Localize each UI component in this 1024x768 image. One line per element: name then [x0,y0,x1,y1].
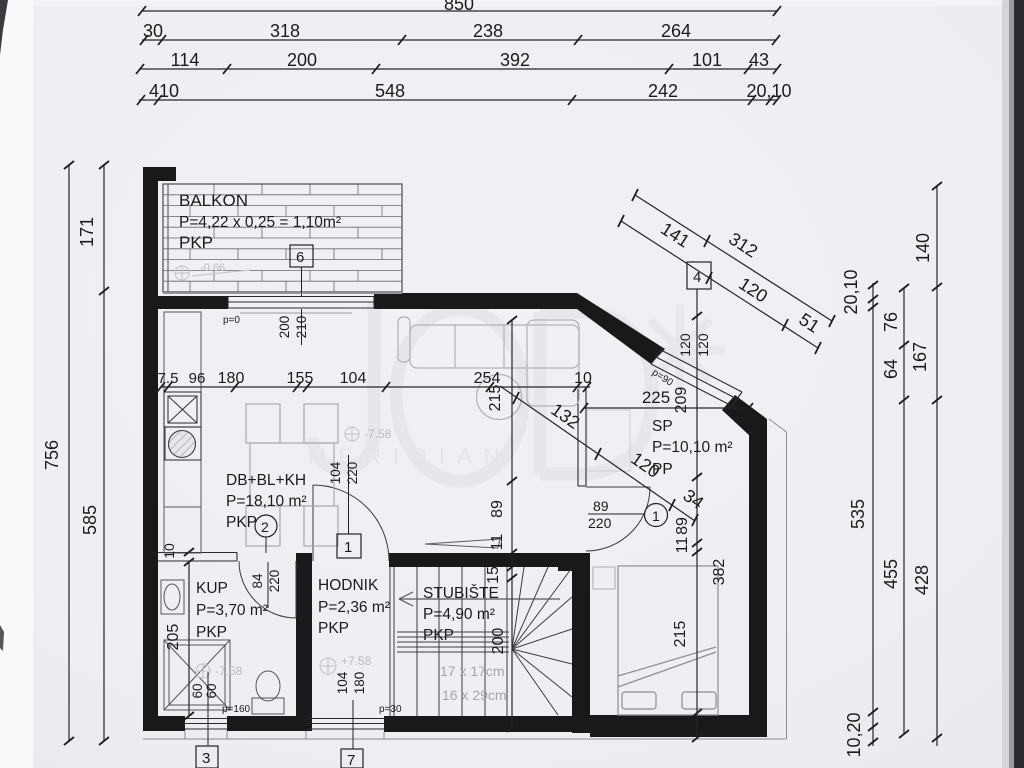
svg-text:3: 3 [202,750,210,767]
svg-text:7.5: 7.5 [158,370,179,387]
svg-text:p=0: p=0 [223,315,240,326]
svg-text:10,20: 10,20 [844,712,864,757]
svg-text:30: 30 [143,21,163,41]
svg-text:215: 215 [672,621,689,648]
svg-text:200: 200 [490,628,507,655]
svg-text:20,10: 20,10 [746,81,791,101]
svg-text:P=2,36 m²: P=2,36 m² [318,599,390,616]
svg-text:167: 167 [910,342,930,372]
svg-text:225: 225 [642,388,670,407]
svg-text:1: 1 [652,508,660,524]
svg-text:-0.66: -0.66 [200,262,225,274]
svg-text:220: 220 [345,462,360,485]
svg-text:KUP: KUP [196,580,228,597]
svg-text:P=4,90 m²: P=4,90 m² [423,606,495,623]
svg-text:200: 200 [277,316,292,339]
svg-text:1: 1 [344,539,352,556]
svg-text:76: 76 [881,312,901,332]
svg-text:DB+BL+KH: DB+BL+KH [226,472,306,489]
svg-text:254: 254 [474,370,501,387]
svg-text:P=4,22 x 0,25 = 1,10m²: P=4,22 x 0,25 = 1,10m² [179,214,341,231]
svg-text:238: 238 [473,21,503,41]
svg-text:STUBIŠTE: STUBIŠTE [423,585,499,602]
svg-text:455: 455 [881,559,901,589]
svg-text:BALKON: BALKON [179,191,248,210]
svg-text:2: 2 [261,519,269,535]
svg-text:96: 96 [189,370,206,387]
svg-text:11: 11 [674,537,691,554]
svg-text:535: 535 [848,499,868,529]
svg-text:+7.58: +7.58 [341,654,372,668]
svg-text:850: 850 [444,0,474,14]
svg-text:PKP: PKP [196,624,227,641]
svg-text:89: 89 [489,500,506,518]
svg-text:215: 215 [487,385,504,412]
svg-text:89: 89 [674,517,691,535]
svg-text:140: 140 [913,233,933,263]
svg-text:120: 120 [695,333,711,357]
svg-text:120: 120 [677,333,693,357]
svg-text:209: 209 [673,387,690,414]
svg-text:101: 101 [692,50,722,70]
svg-text:205: 205 [165,624,182,651]
svg-text:p=30: p=30 [379,704,402,715]
svg-text:PKP: PKP [423,627,454,644]
svg-text:171: 171 [77,217,97,247]
svg-text:10: 10 [574,370,592,387]
svg-text:200: 200 [287,50,317,70]
svg-text:242: 242 [648,81,678,101]
svg-text:382: 382 [711,559,728,586]
svg-text:84: 84 [250,573,265,589]
svg-text:392: 392 [500,50,530,70]
svg-text:6: 6 [296,249,304,266]
svg-text:428: 428 [912,565,932,595]
svg-text:P=10,10 m²: P=10,10 m² [652,439,733,456]
svg-text:P=3,70 m²: P=3,70 m² [196,602,268,619]
svg-text:16 x 29cm: 16 x 29cm [442,687,507,703]
svg-text:180: 180 [352,672,367,695]
svg-text:104: 104 [340,370,367,387]
svg-text:11: 11 [489,534,506,551]
svg-text:-7.58: -7.58 [215,664,243,678]
svg-text:104: 104 [328,461,343,484]
svg-text:60: 60 [204,683,219,698]
svg-text:20,10: 20,10 [841,269,861,314]
svg-text:220: 220 [267,570,282,593]
svg-text:180: 180 [218,370,245,387]
svg-text:89: 89 [593,498,609,514]
svg-text:220: 220 [588,515,612,531]
svg-text:15: 15 [485,566,502,584]
svg-text:PKP: PKP [318,620,349,637]
svg-text:10: 10 [161,543,177,559]
svg-text:43: 43 [749,50,769,70]
svg-text:264: 264 [661,21,691,41]
svg-text:-7.58: -7.58 [364,427,392,441]
svg-text:HODNIK: HODNIK [318,577,379,594]
svg-text:60: 60 [190,683,205,698]
svg-text:318: 318 [270,21,300,41]
svg-text:7: 7 [347,752,355,768]
svg-text:17 x 17cm: 17 x 17cm [440,663,505,679]
svg-text:PKP: PKP [179,233,213,252]
svg-text:585: 585 [80,505,100,535]
svg-text:114: 114 [171,50,200,70]
svg-text:155: 155 [287,370,314,387]
svg-text:SP: SP [652,418,673,435]
svg-text:P=18,10 m²: P=18,10 m² [226,493,307,510]
svg-text:64: 64 [881,359,901,379]
svg-text:410: 410 [149,81,179,101]
svg-text:104: 104 [335,671,350,694]
svg-text:p=160: p=160 [222,704,251,715]
svg-text:548: 548 [375,81,405,101]
svg-text:PKP: PKP [226,514,257,531]
svg-text:756: 756 [42,440,62,470]
